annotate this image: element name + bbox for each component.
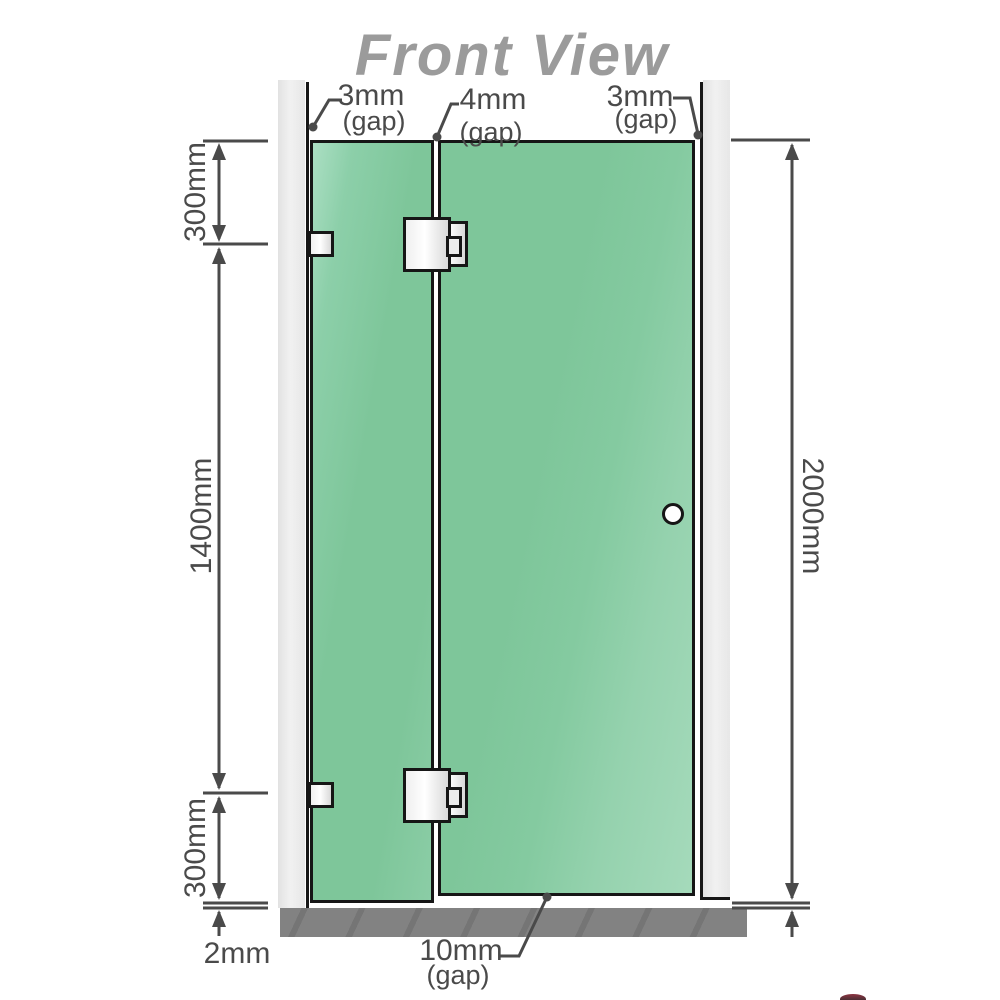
dimension-left-top-300mm: 300mm	[180, 92, 212, 292]
logo-fragment	[840, 994, 866, 1000]
gap-label-top-middle-value: 4mm	[423, 85, 563, 115]
dimension-bottom-left-2mm: 2mm	[167, 939, 307, 969]
gap-label-top-right-suffix: (gap)	[576, 104, 716, 134]
dimension-right-2000mm: 2000mm	[796, 416, 828, 616]
dimension-left-middle-1400mm: 1400mm	[186, 416, 218, 616]
front-view-diagram: Front View	[0, 0, 1000, 1000]
gap-label-bottom-suffix: (gap)	[388, 960, 528, 990]
dimension-graphics	[0, 0, 1000, 1000]
gap-label-top-middle-suffix: (gap)	[421, 117, 561, 147]
dimension-left-bottom-300mm: 300mm	[180, 748, 212, 948]
